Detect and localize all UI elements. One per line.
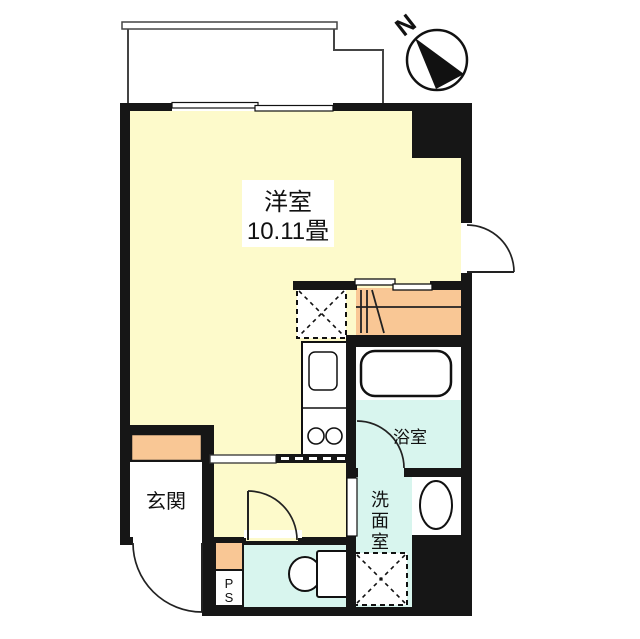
svg-text:面: 面 [371, 511, 389, 531]
toilet-icon [289, 551, 348, 597]
closet-floor [356, 288, 461, 335]
entrance-door-swing [133, 543, 202, 612]
balcony-outline [122, 22, 383, 103]
north-compass: N [390, 9, 467, 90]
stove-burner-icon [308, 428, 324, 444]
shoe-cabinet [131, 434, 202, 461]
kitchen-unit [302, 342, 347, 458]
balcony-window [255, 106, 333, 112]
pipe-space-label-p: P [225, 576, 234, 591]
svg-text:洗: 洗 [371, 490, 389, 510]
washing-machine-space-icon [355, 553, 407, 605]
svg-text:室: 室 [371, 532, 389, 552]
service-shaft-block [412, 535, 472, 607]
counter-edge [210, 455, 276, 463]
living-room-size: 10.11畳 [247, 218, 329, 245]
stove-burner-icon [326, 428, 342, 444]
balcony-window [172, 103, 258, 109]
kitchen-sink-icon [309, 352, 337, 390]
counter-hatch-bar [276, 454, 346, 463]
washroom-label: 洗 面 室 [371, 490, 389, 552]
bathroom-label: 浴室 [393, 428, 427, 447]
washroom-sliding-door [347, 478, 357, 536]
wash-basin-icon [420, 481, 452, 529]
living-room-name: 洋室 [264, 189, 312, 216]
floor-plan-page: N 洋室 10.11畳 玄関 浴室 洗 面 室 P S [0, 0, 640, 639]
pipe-space: P S [215, 542, 243, 606]
closet-sliding-door [393, 284, 432, 290]
entrance-label: 玄関 [146, 490, 186, 513]
bathtub-icon [361, 351, 451, 396]
pipe-space-label-s: S [225, 590, 234, 605]
refrigerator-space-icon [297, 289, 346, 338]
closet-sliding-door [355, 279, 395, 285]
meter-box [215, 542, 243, 570]
side-entry-door-swing [467, 225, 514, 272]
floor-plan-drawing: N 洋室 10.11畳 玄関 浴室 洗 面 室 P S [0, 0, 640, 639]
